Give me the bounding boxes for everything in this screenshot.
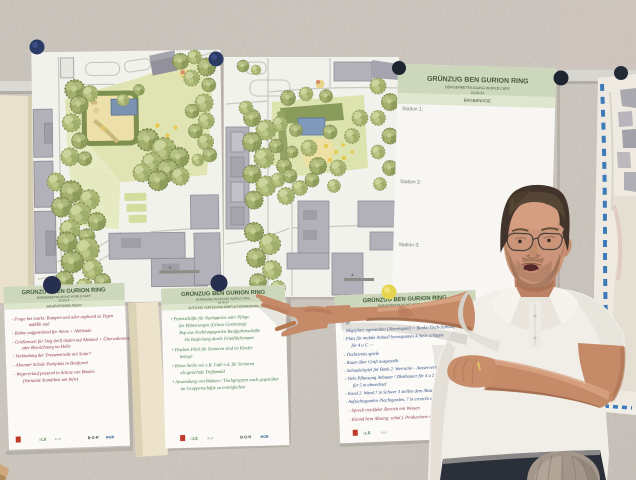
svg-text:B·G·R: B·G·R	[88, 436, 99, 440]
svg-text:≋GB: ≋GB	[106, 435, 115, 439]
svg-text:ERGEBNISSE: ERGEBNISSE	[464, 98, 492, 104]
svg-text:Station 2:: Station 2:	[400, 179, 421, 186]
svg-text:mäßlik taul: mäßlik taul	[29, 321, 51, 327]
svg-text:≡⌂≡: ≡⌂≡	[55, 437, 61, 441]
svg-text:≋GB: ≋GB	[260, 435, 269, 439]
svg-text:B·G·R: B·G·R	[240, 435, 251, 439]
svg-text:23.09.24: 23.09.24	[471, 91, 484, 95]
svg-text:▲: ▲	[350, 272, 355, 278]
svg-text:für 4 u C —: für 4 u C —	[351, 342, 374, 348]
svg-text:⌂LS: ⌂LS	[190, 436, 198, 441]
svg-text:23.09.24: 23.09.24	[58, 298, 69, 302]
svg-text:≡⌂≡: ≡⌂≡	[381, 431, 387, 435]
svg-text:belegt!: belegt!	[180, 354, 193, 359]
svg-text:▲: ▲	[167, 264, 172, 270]
svg-text:⌂LS: ⌂LS	[363, 430, 371, 435]
svg-text:Station 3:: Station 3:	[398, 242, 419, 249]
svg-text:⌂LS: ⌂LS	[39, 437, 47, 442]
svg-text:Station 1:: Station 1:	[402, 106, 423, 113]
svg-text:≡⌂≡: ≡⌂≡	[207, 436, 213, 440]
